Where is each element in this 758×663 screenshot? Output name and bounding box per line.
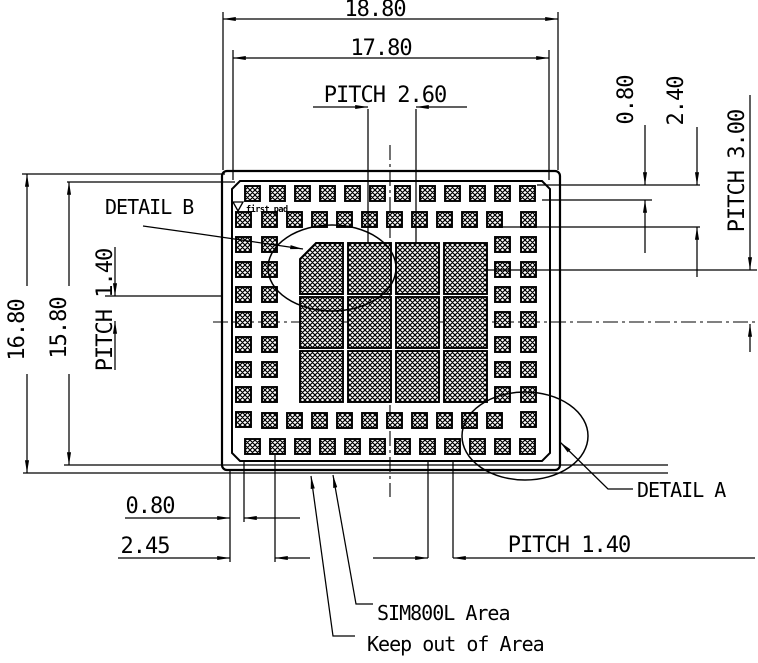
pad-left-inner-col-7 xyxy=(262,387,277,402)
pad-bottom-outer-row-1 xyxy=(245,439,260,454)
pad-right-outer-col-6 xyxy=(521,337,536,352)
pad-left-outer-col-9 xyxy=(236,412,251,427)
dim-side-pad-pitch-text: PITCH 1.40 xyxy=(93,249,118,371)
pad-top-inner-row-10 xyxy=(487,212,502,227)
pad-left-outer-col-8 xyxy=(236,387,251,402)
pad-center-r3c4 xyxy=(444,351,487,402)
pad-center-r1c3 xyxy=(396,243,439,294)
pad-top-outer-row-7 xyxy=(395,186,410,201)
pad-bottom-outer-row-3 xyxy=(295,439,310,454)
dim-bottom-pad-pitch-text: PITCH 1.40 xyxy=(508,533,630,558)
pad-bottom-outer-row-8 xyxy=(420,439,435,454)
dim-inner-width-text: 17.80 xyxy=(350,36,411,61)
pad-bottom-outer-row-2 xyxy=(270,439,285,454)
pad-right-inner-col-1 xyxy=(495,237,510,252)
pad-top-inner-row-6 xyxy=(387,212,402,227)
pad-top-inner-row-8 xyxy=(437,212,452,227)
dim-double-row-span-text: 2.40 xyxy=(664,77,689,126)
pad-top-outer-row-11 xyxy=(495,186,510,201)
pad-bottom-inner-row-10 xyxy=(487,413,502,428)
pad-top-outer-row-9 xyxy=(445,186,460,201)
keep-out-label: Keep out of Area xyxy=(367,632,544,656)
drawing-svg: 18.80 17.80 PITCH 2.60 0.80 2.40 PITCH 3… xyxy=(0,0,758,663)
pad-left-inner-col-3 xyxy=(262,287,277,302)
first-pad-label: first pad xyxy=(246,204,288,215)
pad-right-outer-col-7 xyxy=(521,362,536,377)
pad-right-outer-col-8 xyxy=(521,387,536,402)
pad-right-inner-col-4 xyxy=(495,312,510,327)
pad-left-inner-col-5 xyxy=(262,337,277,352)
pad-right-inner-col-6 xyxy=(495,362,510,377)
dim-center-pitch-x-text: PITCH 2.60 xyxy=(324,83,446,108)
pad-right-outer-col-5 xyxy=(521,312,536,327)
detail-b-label: DETAIL B xyxy=(105,195,194,219)
pad-right-outer-col-4 xyxy=(521,287,536,302)
pad-bottom-outer-row-7 xyxy=(395,439,410,454)
pad-top-inner-row-5 xyxy=(362,212,377,227)
pad-left-outer-col-7 xyxy=(236,362,251,377)
dim-center-pitch-y-text: PITCH 3.00 xyxy=(725,110,750,232)
pad-right-outer-col-2 xyxy=(521,237,536,252)
pad-right-inner-col-3 xyxy=(495,287,510,302)
dim-outer-height-text: 16.80 xyxy=(5,299,30,360)
pad-center-r1c4 xyxy=(444,243,487,294)
pad-bottom-outer-row-4 xyxy=(320,439,335,454)
pad-top-outer-row-3 xyxy=(295,186,310,201)
module-area-label: SIM800L Area xyxy=(377,601,510,625)
pad-bottom-inner-row-2 xyxy=(287,413,302,428)
dim-bottom-corner-offset-text: 2.45 xyxy=(121,534,170,559)
pad-bottom-outer-row-6 xyxy=(370,439,385,454)
pad-top-outer-row-6 xyxy=(370,186,385,201)
pad-bottom-outer-row-9 xyxy=(445,439,460,454)
pad-bottom-inner-row-4 xyxy=(337,413,352,428)
pad-top-outer-row-4 xyxy=(320,186,335,201)
pad-top-outer-row-8 xyxy=(420,186,435,201)
pad-bottom-outer-row-11 xyxy=(495,439,510,454)
pad-left-outer-col-3 xyxy=(236,262,251,277)
pad-bottom-inner-row-6 xyxy=(387,413,402,428)
pad-bottom-inner-row-8 xyxy=(437,413,452,428)
pad-center-r2c1 xyxy=(300,297,343,348)
pad-bottom-inner-row-3 xyxy=(312,413,327,428)
pad-right-outer-col-9 xyxy=(521,412,536,427)
pad-center-r3c3 xyxy=(396,351,439,402)
dim-pad-height-text: 0.80 xyxy=(614,76,639,125)
keep-out-leader xyxy=(311,476,355,636)
pad-right-outer-col-1 xyxy=(521,212,536,227)
pad-center-r3c1 xyxy=(300,351,343,402)
pad-right-inner-col-5 xyxy=(495,337,510,352)
pad-bottom-outer-row-12 xyxy=(520,439,535,454)
pad-top-outer-row-12 xyxy=(520,186,535,201)
pad-top-outer-row-1 xyxy=(245,186,260,201)
footprint-drawing: 18.80 17.80 PITCH 2.60 0.80 2.40 PITCH 3… xyxy=(0,0,758,663)
detail-a-label: DETAIL A xyxy=(637,478,726,502)
pad-top-inner-row-9 xyxy=(462,212,477,227)
pad-bottom-inner-row-7 xyxy=(412,413,427,428)
pad-center-r2c4 xyxy=(444,297,487,348)
pad-top-inner-row-7 xyxy=(412,212,427,227)
pad-top-outer-row-10 xyxy=(470,186,485,201)
pad-center-r3c2 xyxy=(348,351,391,402)
dim-inner-height-text: 15.80 xyxy=(47,297,72,358)
pad-center-r1c2 xyxy=(348,243,391,294)
pad-center-r2c3 xyxy=(396,297,439,348)
pad-bottom-outer-row-5 xyxy=(345,439,360,454)
module-area-leader xyxy=(333,475,373,604)
pad-top-outer-row-5 xyxy=(345,186,360,201)
pad-top-outer-row-2 xyxy=(270,186,285,201)
dim-bottom-pad-offset-text: 0.80 xyxy=(126,494,175,519)
pad-bottom-inner-row-5 xyxy=(362,413,377,428)
pad-left-outer-col-5 xyxy=(236,312,251,327)
pad-center-r2c2 xyxy=(348,297,391,348)
pad-left-inner-col-6 xyxy=(262,362,277,377)
pad-left-inner-col-2 xyxy=(262,262,277,277)
pad-left-outer-col-6 xyxy=(236,337,251,352)
pad-left-inner-col-4 xyxy=(262,312,277,327)
pad-left-outer-col-4 xyxy=(236,287,251,302)
pad-bottom-inner-row-1 xyxy=(262,413,277,428)
dim-outer-width-text: 18.80 xyxy=(344,0,405,22)
pad-bottom-outer-row-10 xyxy=(470,439,485,454)
pad-top-inner-row-2 xyxy=(287,212,302,227)
